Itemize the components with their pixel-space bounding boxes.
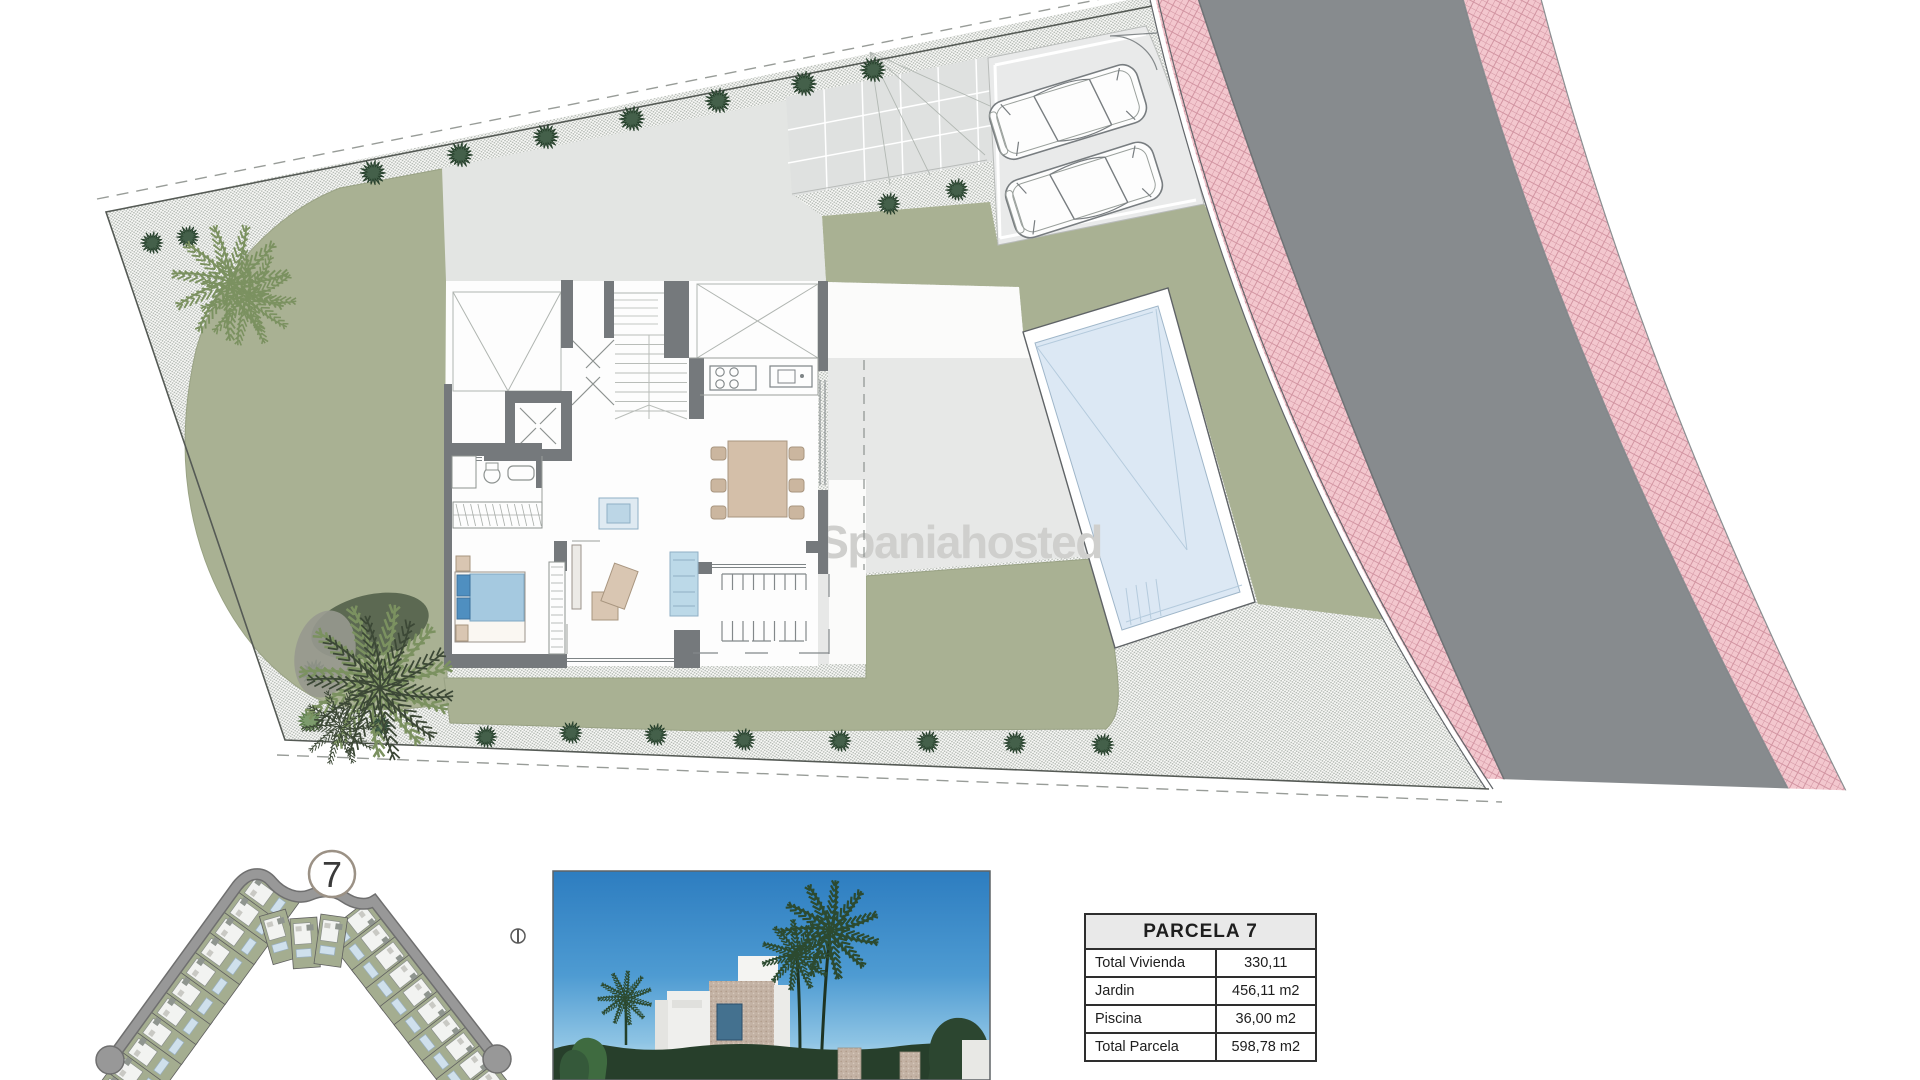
- svg-text:7: 7: [322, 854, 342, 895]
- svg-text:Spaniahosted: Spaniahosted: [818, 516, 1102, 568]
